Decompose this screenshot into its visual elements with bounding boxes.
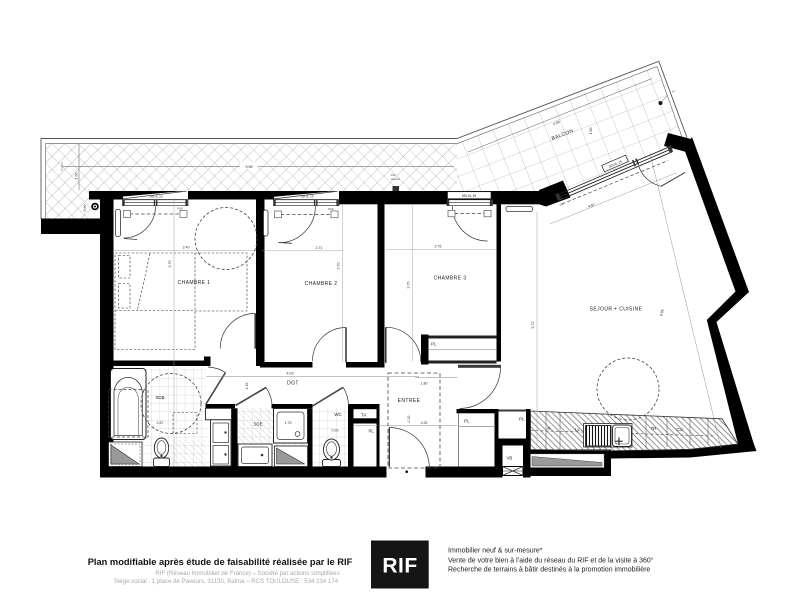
svg-text:3.40: 3.40 bbox=[183, 246, 190, 250]
svg-text:RIF: RIF bbox=[382, 555, 417, 578]
svg-text:1.60: 1.60 bbox=[75, 173, 79, 180]
svg-text:Siège social : 1 place de Pave: Siège social : 1 place de Paveurs, 31130… bbox=[114, 578, 339, 585]
svg-text:Recherche de terrains à bâtir: Recherche de terrains à bâtir destinés à… bbox=[448, 567, 650, 574]
svg-text:Vente de votre bien à l’aide d: Vente de votre bien à l’aide du réseau d… bbox=[448, 557, 654, 565]
svg-text:4.03: 4.03 bbox=[287, 372, 294, 376]
svg-text:2.87: 2.87 bbox=[157, 421, 164, 425]
svg-text:9.56: 9.56 bbox=[246, 165, 253, 169]
svg-text:WC: WC bbox=[334, 412, 341, 417]
svg-text:LL: LL bbox=[575, 427, 580, 432]
svg-text:FIXE: FIXE bbox=[328, 207, 334, 211]
svg-text:PL: PL bbox=[431, 342, 437, 347]
svg-text:2.71: 2.71 bbox=[316, 246, 323, 250]
svg-text:1.25: 1.25 bbox=[245, 383, 249, 390]
svg-text:2.32: 2.32 bbox=[407, 416, 411, 423]
svg-text:FIXE: FIXE bbox=[177, 207, 183, 211]
svg-text:CHAMBRE 3: CHAMBRE 3 bbox=[434, 276, 467, 282]
svg-text:Plan modifiable après étude de: Plan modifiable après étude de faisabili… bbox=[88, 557, 353, 567]
svg-text:0.93: 0.93 bbox=[332, 429, 339, 433]
svg-text:SDE: SDE bbox=[253, 422, 262, 427]
svg-text:1.80: 1.80 bbox=[421, 382, 428, 386]
svg-text:1.75: 1.75 bbox=[285, 421, 292, 425]
svg-text:3.70: 3.70 bbox=[168, 261, 172, 268]
svg-text:3.70: 3.70 bbox=[336, 263, 340, 270]
svg-text:CHAMBRE 2: CHAMBRE 2 bbox=[305, 281, 338, 287]
svg-text:SEUIL 15: SEUIL 15 bbox=[300, 195, 313, 199]
svg-text:RIF (Réseau Immobilier de Fran: RIF (Réseau Immobilier de France) – Soci… bbox=[155, 570, 339, 577]
svg-text:PL: PL bbox=[369, 429, 375, 434]
svg-text:TR: TR bbox=[651, 426, 657, 431]
svg-text:PL: PL bbox=[519, 417, 525, 422]
svg-text:5.72: 5.72 bbox=[531, 322, 535, 329]
svg-text:3.32: 3.32 bbox=[421, 421, 428, 425]
svg-text:R: R bbox=[547, 426, 550, 431]
svg-text:TA: TA bbox=[361, 412, 366, 417]
svg-text:3.70: 3.70 bbox=[406, 282, 410, 289]
svg-text:CHAMBRE 1: CHAMBRE 1 bbox=[178, 280, 211, 286]
svg-text:SEJOUR + CUISINE: SEJOUR + CUISINE bbox=[590, 307, 643, 313]
svg-text:VB: VB bbox=[507, 456, 513, 461]
svg-text:PL: PL bbox=[464, 419, 470, 424]
svg-text:Immobilier neuf & sur-mesure*: Immobilier neuf & sur-mesure* bbox=[448, 548, 543, 555]
svg-text:ENTREE: ENTREE bbox=[398, 398, 421, 404]
svg-text:SEUIL 15: SEUIL 15 bbox=[149, 195, 162, 199]
svg-text:1.60: 1.60 bbox=[589, 128, 593, 135]
svg-text:CU: CU bbox=[676, 427, 682, 432]
svg-text:etanche: etanche bbox=[391, 177, 401, 181]
svg-text:SEUIL 15: SEUIL 15 bbox=[462, 194, 477, 198]
svg-text:DGT: DGT bbox=[287, 381, 299, 387]
svg-text:SDB: SDB bbox=[155, 395, 164, 400]
svg-text:0.60: 0.60 bbox=[83, 205, 87, 212]
svg-text:2.76: 2.76 bbox=[435, 245, 442, 249]
svg-text:Plte: Plte bbox=[391, 173, 396, 177]
